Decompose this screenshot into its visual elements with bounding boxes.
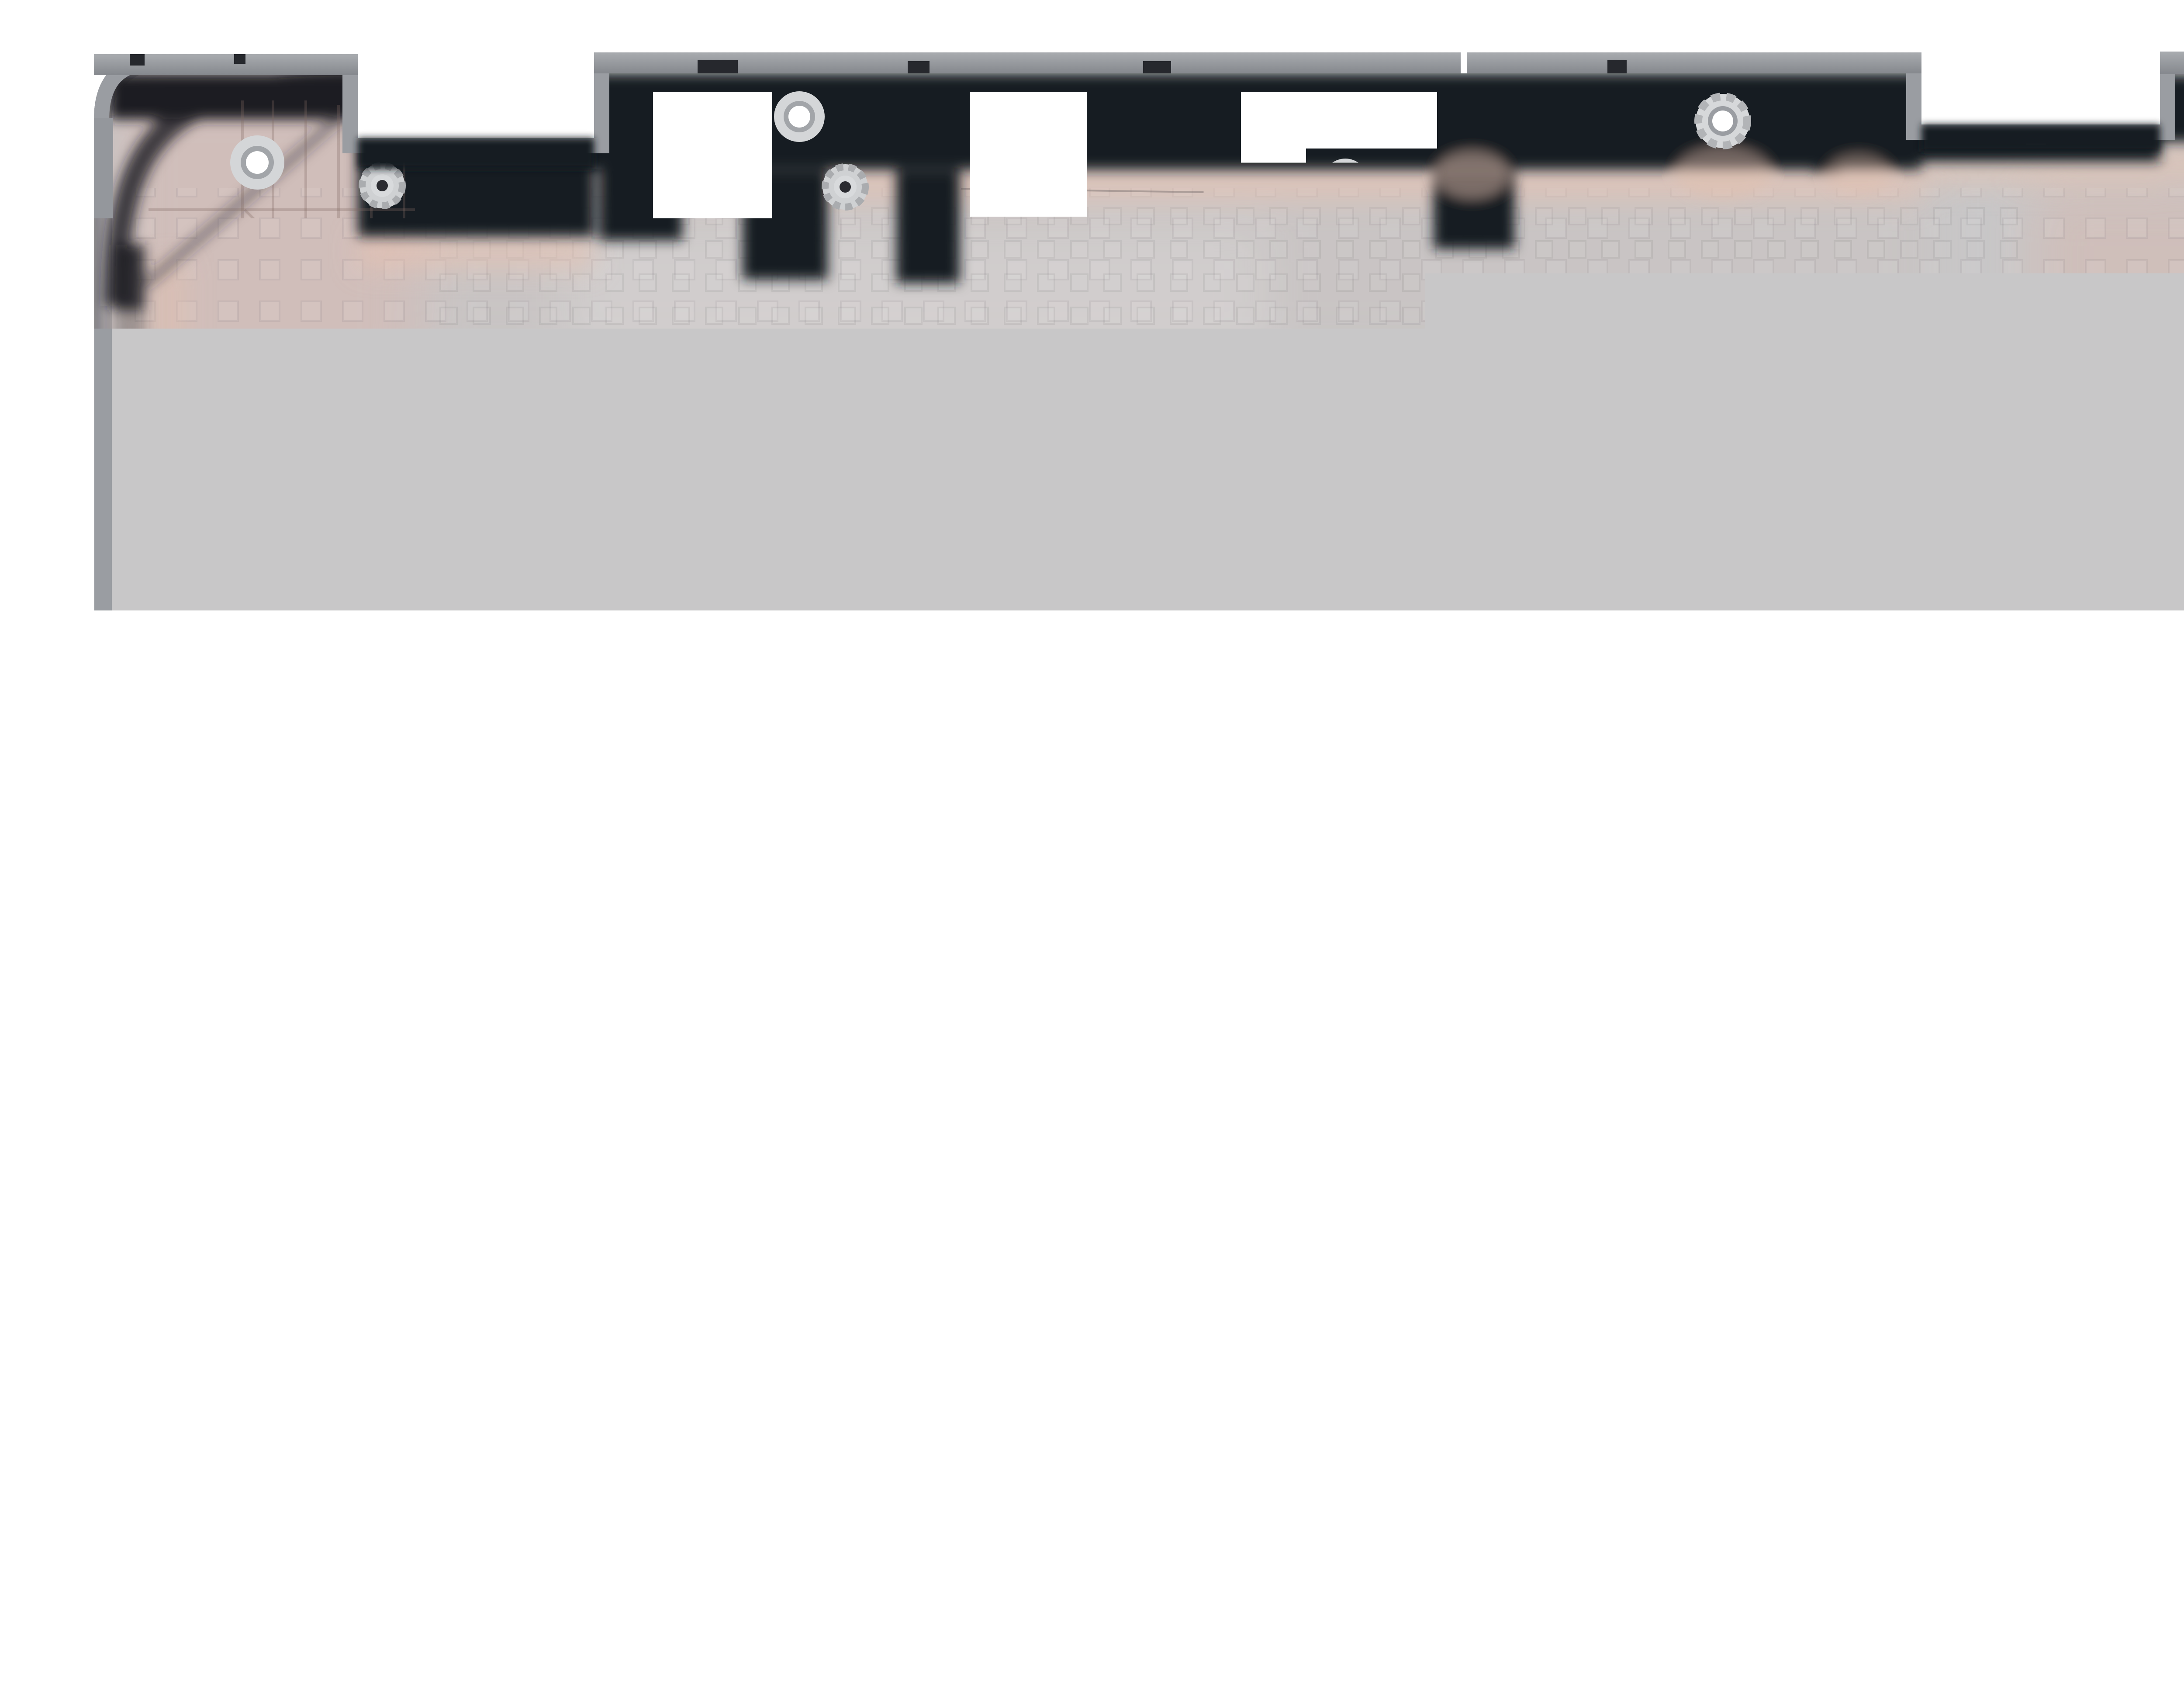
svg-text:PARTS: PARTS bbox=[1116, 843, 1482, 1135]
svg-text:C204CE A2-1: C204CE A2-1 bbox=[520, 333, 678, 356]
svg-text:13NX02A1P10X12: 13NX02A1P10X12 bbox=[1508, 495, 1739, 523]
svg-text:13N1-86A0A01: 13N1-86A0A01 bbox=[383, 544, 490, 563]
svg-text:0B 1955 3328: 0B 1955 3328 bbox=[383, 567, 491, 586]
svg-text:>PC+ABS-TD15FR(40)< MPZ#2: >PC+ABS-TD15FR(40)< MPZ#2 bbox=[1507, 462, 1898, 489]
